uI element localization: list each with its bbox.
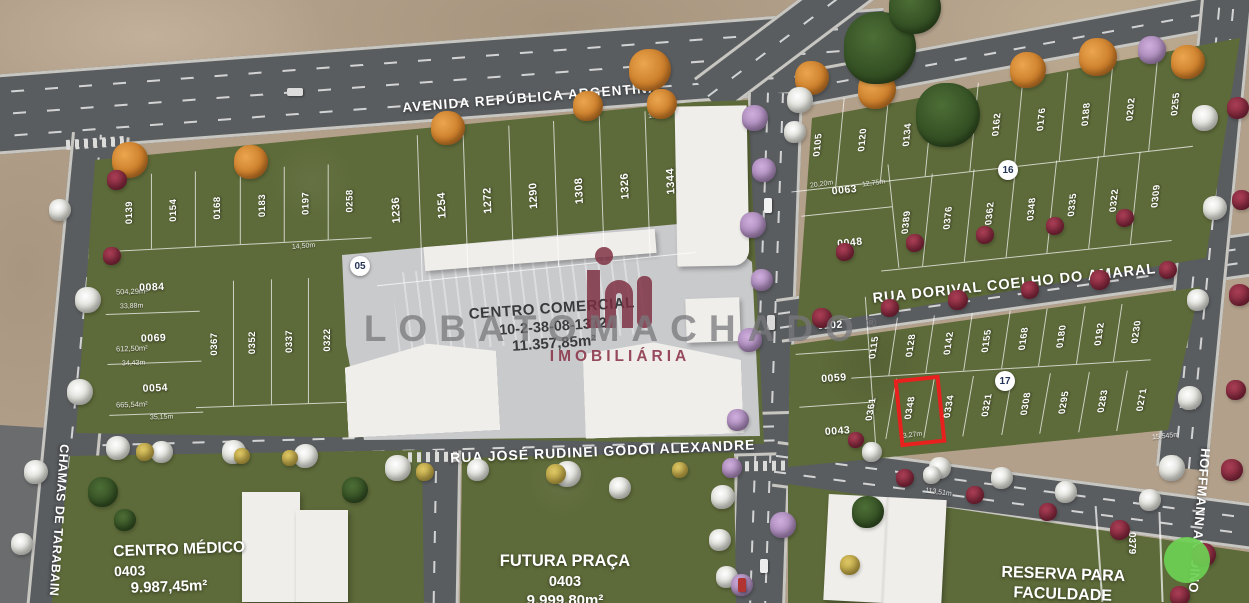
centro-medico-building bbox=[296, 510, 348, 602]
dimension-label: 35,15m bbox=[150, 414, 174, 422]
lot-0337: 0337 bbox=[270, 278, 308, 404]
marker-17: 17 bbox=[995, 371, 1015, 391]
futura-praca-title: FUTURA PRAÇA bbox=[480, 552, 650, 571]
tree bbox=[1229, 284, 1249, 306]
lot-0183: 0183 bbox=[239, 167, 283, 244]
commercial-annex-building bbox=[685, 297, 741, 343]
lot-0069: 0069 bbox=[106, 310, 202, 364]
lot-0154: 0154 bbox=[151, 171, 195, 248]
centro-medico-title: CENTRO MÉDICO bbox=[113, 539, 245, 562]
nw-top-lot-row: 013901540168018301970258 bbox=[108, 162, 372, 252]
lot-1272: 1272 bbox=[462, 126, 513, 276]
west-inner-lot-row: 0367035203370322 bbox=[196, 277, 346, 408]
lot-1308: 1308 bbox=[553, 116, 604, 266]
lot-0379-label: 0379 bbox=[1126, 532, 1137, 554]
lot-0322: 0322 bbox=[308, 277, 346, 403]
futura-praca-code: 0403 bbox=[480, 574, 650, 590]
lot-0255: 0255 bbox=[1148, 57, 1201, 151]
dimension-label: 34,43m bbox=[122, 360, 146, 368]
lot-area-label: 612,50m² bbox=[116, 343, 148, 353]
centro-medico-label: CENTRO MÉDICO 0403 9.987,45m² bbox=[113, 539, 247, 598]
reserva-building bbox=[823, 494, 946, 603]
futura-praca-label: FUTURA PRAÇA 0403 9.999,80m² bbox=[480, 552, 650, 603]
marker-16: 16 bbox=[998, 160, 1018, 180]
marker-05: 05 bbox=[350, 256, 370, 276]
tree bbox=[1226, 380, 1246, 400]
highlighted-lot-0348-box bbox=[894, 375, 947, 447]
lot-0139: 0139 bbox=[108, 174, 151, 251]
masterplan-map: 013901540168018301970258 123612541272129… bbox=[0, 0, 1249, 603]
tree bbox=[1232, 190, 1249, 210]
reserva-faculdade-label: RESERVA PARA FACULDADE bbox=[947, 562, 1178, 603]
futura-praca-area: 9.999,80m² bbox=[480, 592, 650, 603]
tree bbox=[1221, 459, 1243, 481]
lot-1236: 1236 bbox=[372, 135, 422, 285]
lot-0258: 0258 bbox=[328, 162, 372, 239]
lot-area-label: 665,54m² bbox=[116, 399, 148, 409]
lot-area-label: 504,29m² bbox=[116, 286, 148, 296]
lot-0168: 0168 bbox=[195, 169, 239, 246]
lot-0197: 0197 bbox=[283, 164, 327, 241]
lot-0367: 0367 bbox=[196, 281, 233, 407]
lot-1254: 1254 bbox=[417, 131, 468, 281]
lot-1326: 1326 bbox=[599, 111, 650, 261]
lot-0352: 0352 bbox=[233, 279, 271, 405]
west-lot-column: 008400690054 bbox=[104, 261, 203, 416]
tree bbox=[889, 0, 941, 34]
centro-medico-building bbox=[242, 492, 300, 602]
green-location-circle bbox=[1164, 537, 1210, 583]
crosswalk bbox=[736, 461, 788, 472]
lot-1290: 1290 bbox=[508, 121, 559, 271]
dimension-label: 33,88m bbox=[120, 303, 144, 311]
lot-1344: 1344 bbox=[645, 107, 696, 257]
